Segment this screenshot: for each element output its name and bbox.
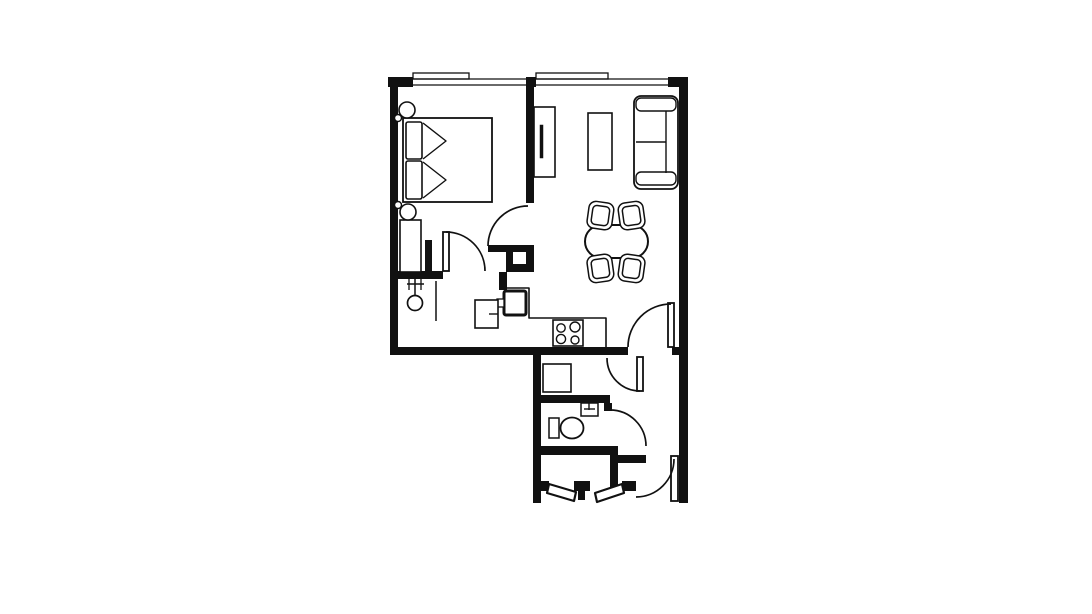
wall-sconce-bottom (395, 202, 402, 209)
floor-plan-page (0, 0, 1092, 614)
sofa-armrest-bottom (636, 172, 676, 185)
bathroom-door-arc (610, 410, 646, 446)
laundry-door-arc (607, 358, 640, 391)
top-wall-corner-left (388, 77, 413, 87)
bed-pillow-bottom (406, 161, 422, 199)
bedroom-door-leaf (443, 232, 449, 271)
toilet-tank (549, 418, 559, 438)
vestibule-door-leaf-right (595, 484, 624, 502)
dining-chair-bottom-left-inner (591, 258, 610, 279)
stove-burner-top-right (570, 322, 580, 332)
stove-burner-bottom-left (556, 334, 565, 343)
laundry-door-leaf (637, 357, 643, 391)
tv-unit (534, 107, 555, 177)
vestibule-jamb-center (574, 481, 590, 491)
dining-table (585, 225, 648, 258)
hall-wall-stub (425, 240, 432, 271)
bottom-wall-right-stub (672, 347, 680, 355)
dining-chair-top-left-inner (591, 205, 610, 226)
living-room-door-leaf (668, 303, 674, 347)
living-corridor-door-arc (628, 304, 671, 347)
laundry-bottom-wall (533, 395, 610, 403)
coffee-table (588, 113, 612, 170)
window-sill-right (536, 73, 608, 79)
vestibule-jamb-left (533, 481, 549, 491)
kitchen-nook-step-vertical (506, 252, 513, 272)
stove-burner-top-left (557, 324, 565, 332)
entry-door-arc (636, 459, 674, 497)
bathroom-bottom-wall (533, 446, 618, 455)
dining-chair-top-right-inner (622, 205, 641, 226)
bedroom-living-door-arc (488, 206, 528, 246)
wardrobe (400, 220, 421, 272)
dividing-wall-bedroom-living (526, 78, 534, 203)
outer-wall-right (679, 78, 688, 503)
dining-chair-bottom-right-inner (622, 258, 641, 279)
wall-sconce-top (395, 115, 402, 122)
tv-screen (540, 125, 543, 158)
sofa-armrest-top (636, 98, 676, 111)
stove-burner-bottom-right (571, 336, 579, 344)
vestibule-door-leaf-left (547, 484, 576, 501)
kitchen-nook-step-horizontal (513, 264, 534, 272)
kitchen-wall-stub (499, 272, 507, 290)
washing-machine (543, 364, 571, 392)
window-sill-left (413, 73, 469, 79)
bedroom-hall-door-arc (446, 232, 485, 271)
toilet-bowl (561, 418, 584, 439)
lower-wing-wall-left (533, 351, 541, 503)
nightstand-lamp-bottom (400, 204, 416, 220)
floor-plan-drawing (0, 0, 1092, 614)
bed-pillow-top (406, 122, 422, 159)
bottom-wall-main (390, 347, 628, 355)
vestibule-center-post (578, 491, 585, 500)
kitchen-sink (504, 291, 526, 315)
coat-stand-head (408, 296, 423, 311)
